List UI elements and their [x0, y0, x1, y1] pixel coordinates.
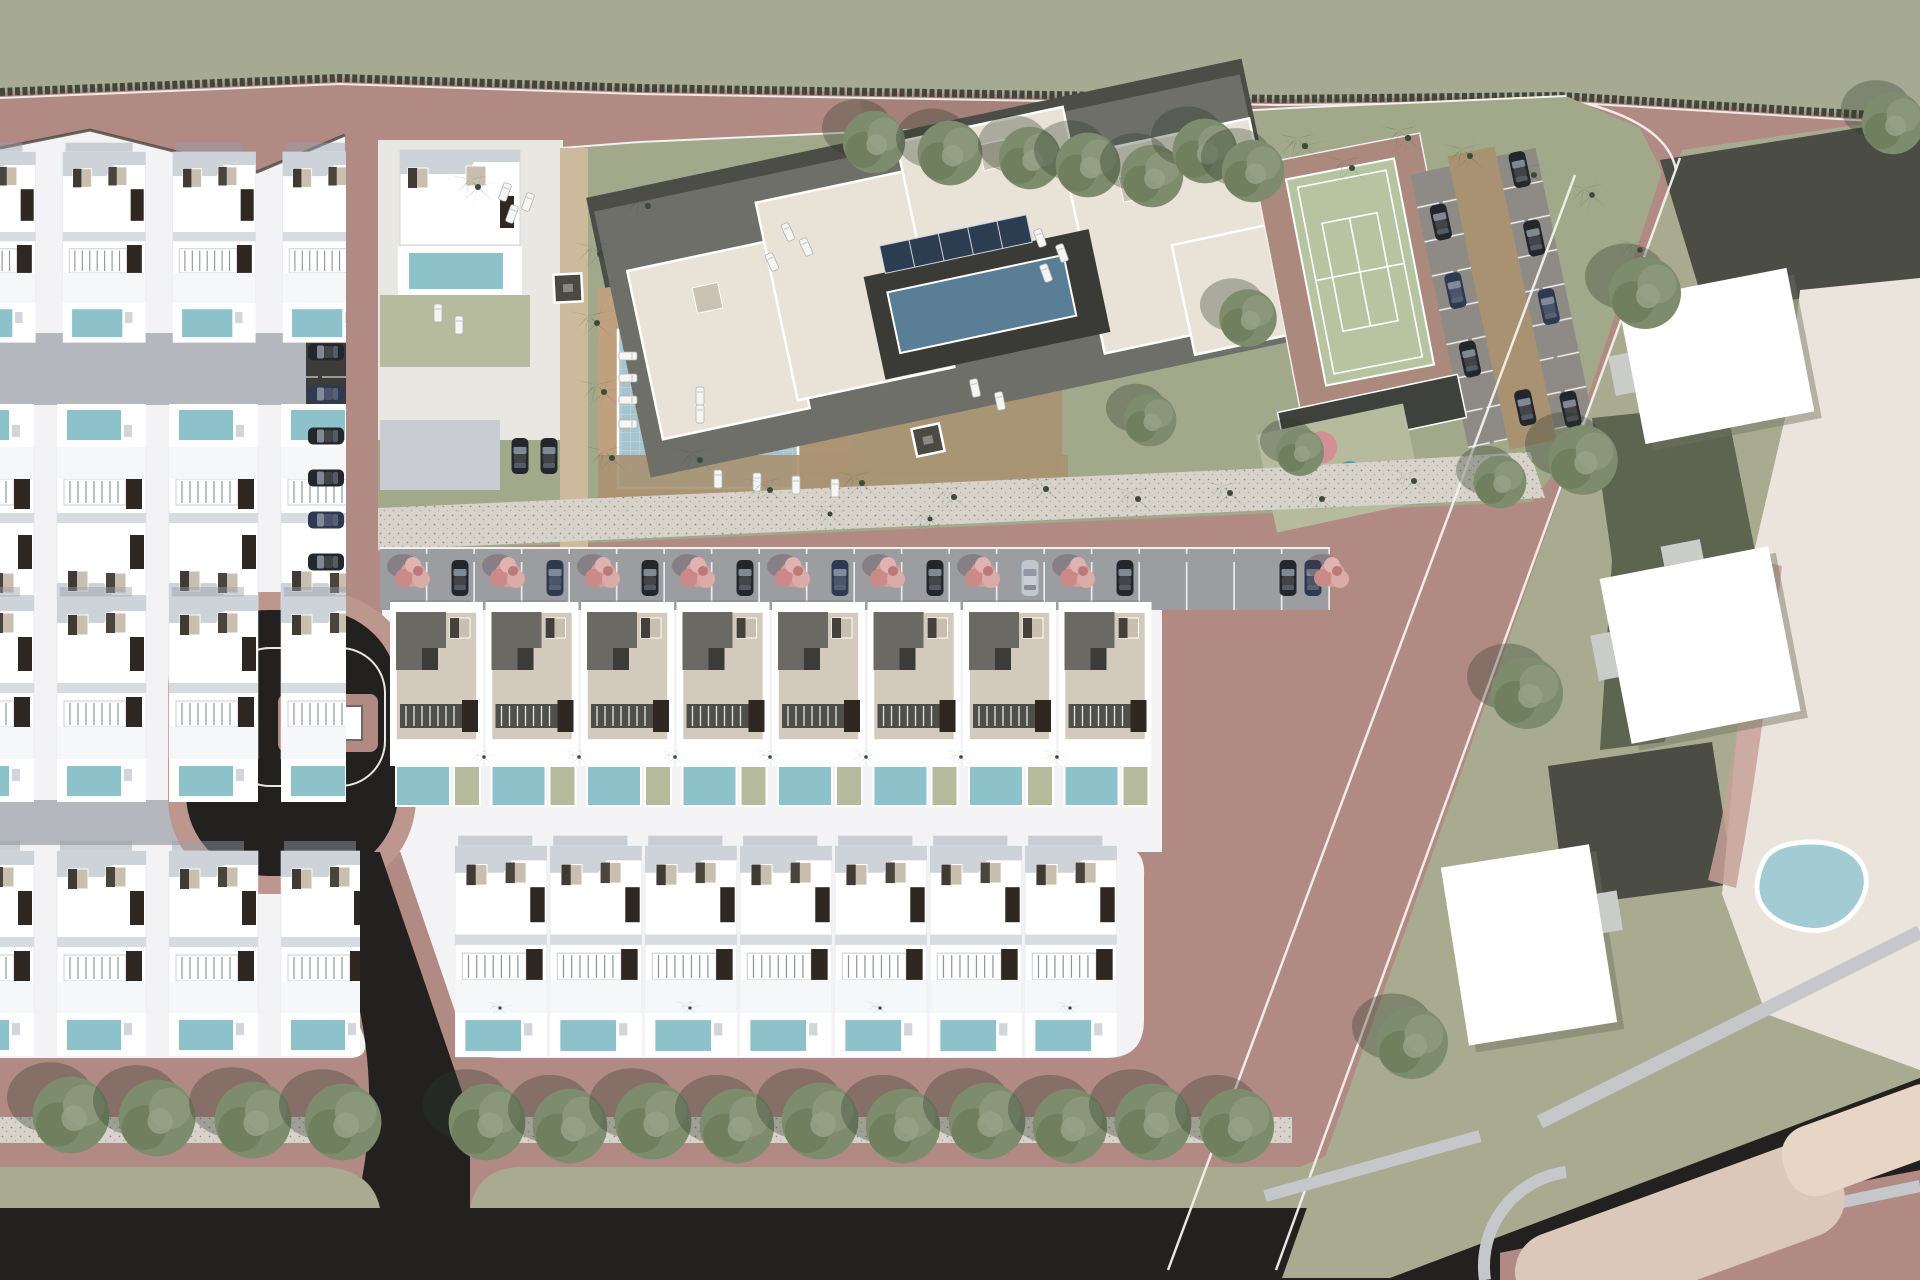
villa [63, 143, 146, 343]
clubhouse-zone [378, 140, 563, 490]
sun-lounger [831, 479, 839, 497]
townhouse [963, 600, 1056, 806]
car [1280, 560, 1297, 596]
townhouse [1059, 600, 1152, 806]
car [832, 560, 849, 596]
villa [930, 836, 1022, 1057]
villa [57, 404, 146, 619]
clubhouse-pool [408, 252, 504, 290]
villa-row-5 [455, 836, 1117, 1057]
site-plan-render [0, 0, 1920, 1280]
car [308, 554, 344, 571]
sun-lounger [714, 470, 722, 488]
car [1022, 560, 1039, 596]
pond [1757, 842, 1866, 931]
lawn-strip-left [0, 1167, 380, 1208]
villa [169, 587, 258, 802]
villa [0, 587, 34, 802]
sun-lounger [434, 304, 442, 322]
villa [740, 836, 832, 1057]
car [308, 470, 344, 487]
townhouse [390, 600, 483, 806]
pool-kiosk [911, 423, 944, 456]
car [1117, 560, 1134, 596]
villa [173, 143, 256, 343]
car [512, 438, 529, 474]
villa [645, 836, 737, 1057]
car [541, 438, 558, 474]
sun-lounger [619, 374, 637, 382]
car [308, 386, 344, 403]
townhouse [677, 600, 770, 806]
villa [57, 587, 146, 802]
villa [1025, 836, 1117, 1057]
car [452, 560, 469, 596]
car [547, 560, 564, 596]
car [642, 560, 659, 596]
site-plan-canvas [0, 0, 1920, 1280]
car [308, 428, 344, 445]
townhouse [486, 600, 579, 806]
villa [835, 836, 927, 1057]
clubhouse-parking [380, 420, 500, 490]
car [927, 560, 944, 596]
pool-kiosk [553, 273, 582, 302]
townhouse [581, 600, 674, 806]
car [737, 560, 754, 596]
villa [0, 143, 36, 343]
sun-lounger [619, 352, 637, 360]
car [308, 344, 344, 361]
driveway-upper [0, 333, 345, 405]
villa [455, 836, 547, 1057]
villa [550, 836, 642, 1057]
car [308, 512, 344, 529]
villa [281, 841, 370, 1056]
villa [0, 404, 34, 619]
sun-lounger [619, 396, 637, 404]
villa [0, 841, 34, 1056]
sun-lounger [696, 387, 704, 405]
villa [169, 404, 258, 619]
townhouse [868, 600, 961, 806]
townhouse [772, 600, 865, 806]
villa [169, 841, 258, 1056]
palm-path [560, 148, 588, 548]
sun-lounger [696, 405, 704, 423]
villa [57, 841, 146, 1056]
sun-lounger [792, 476, 800, 494]
sun-lounger [619, 420, 637, 428]
sun-lounger [753, 473, 761, 491]
sun-lounger [455, 316, 463, 334]
